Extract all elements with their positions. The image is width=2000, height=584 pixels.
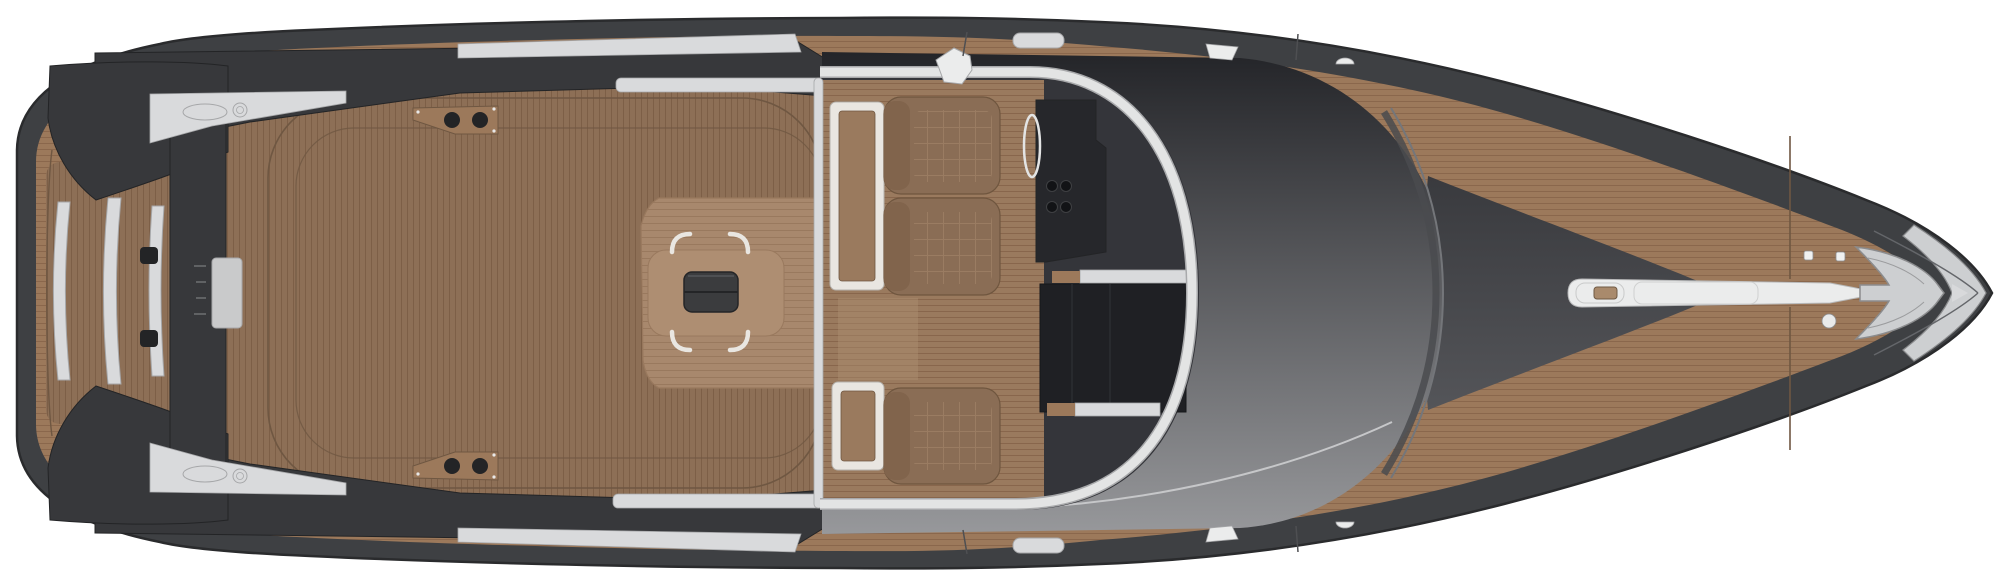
rail-latch-bottom [140, 330, 158, 347]
yacht-deck-plan [0, 0, 2000, 584]
companionway-rail-top [1080, 270, 1197, 283]
backrest-panel-bottom [832, 382, 884, 470]
cockpit-seat-starboard [884, 388, 1000, 484]
cockpit-aft-rail [814, 78, 823, 508]
rail-latch-top [140, 247, 158, 264]
cockpit-seat-port-1 [884, 97, 1000, 194]
fairlead-top [1206, 44, 1238, 60]
cockpit [814, 66, 1199, 510]
deck-fitting-1 [1804, 251, 1813, 260]
deck-fitting-3 [1822, 314, 1836, 328]
helm-console [1036, 100, 1106, 262]
cleat-bottom [1013, 538, 1064, 553]
walkthrough-patch [838, 298, 918, 380]
aft-sunpad [641, 198, 828, 388]
backrest-panel-top [830, 102, 884, 290]
yacht-top-view-canvas [0, 0, 2000, 584]
chain-stopper [1594, 287, 1617, 299]
deck-fitting-2 [1836, 252, 1845, 261]
cockpit-seat-port-2 [884, 198, 1000, 295]
companionway-rail-bottom [1075, 403, 1160, 416]
fairlead-bottom [1206, 526, 1238, 542]
anchor-channel-strip [1568, 279, 1872, 307]
companionway-step-bottom [1047, 403, 1075, 416]
cocktail-table [684, 272, 738, 312]
companionway-step-top [1052, 271, 1080, 283]
cleat-top [1013, 33, 1064, 48]
